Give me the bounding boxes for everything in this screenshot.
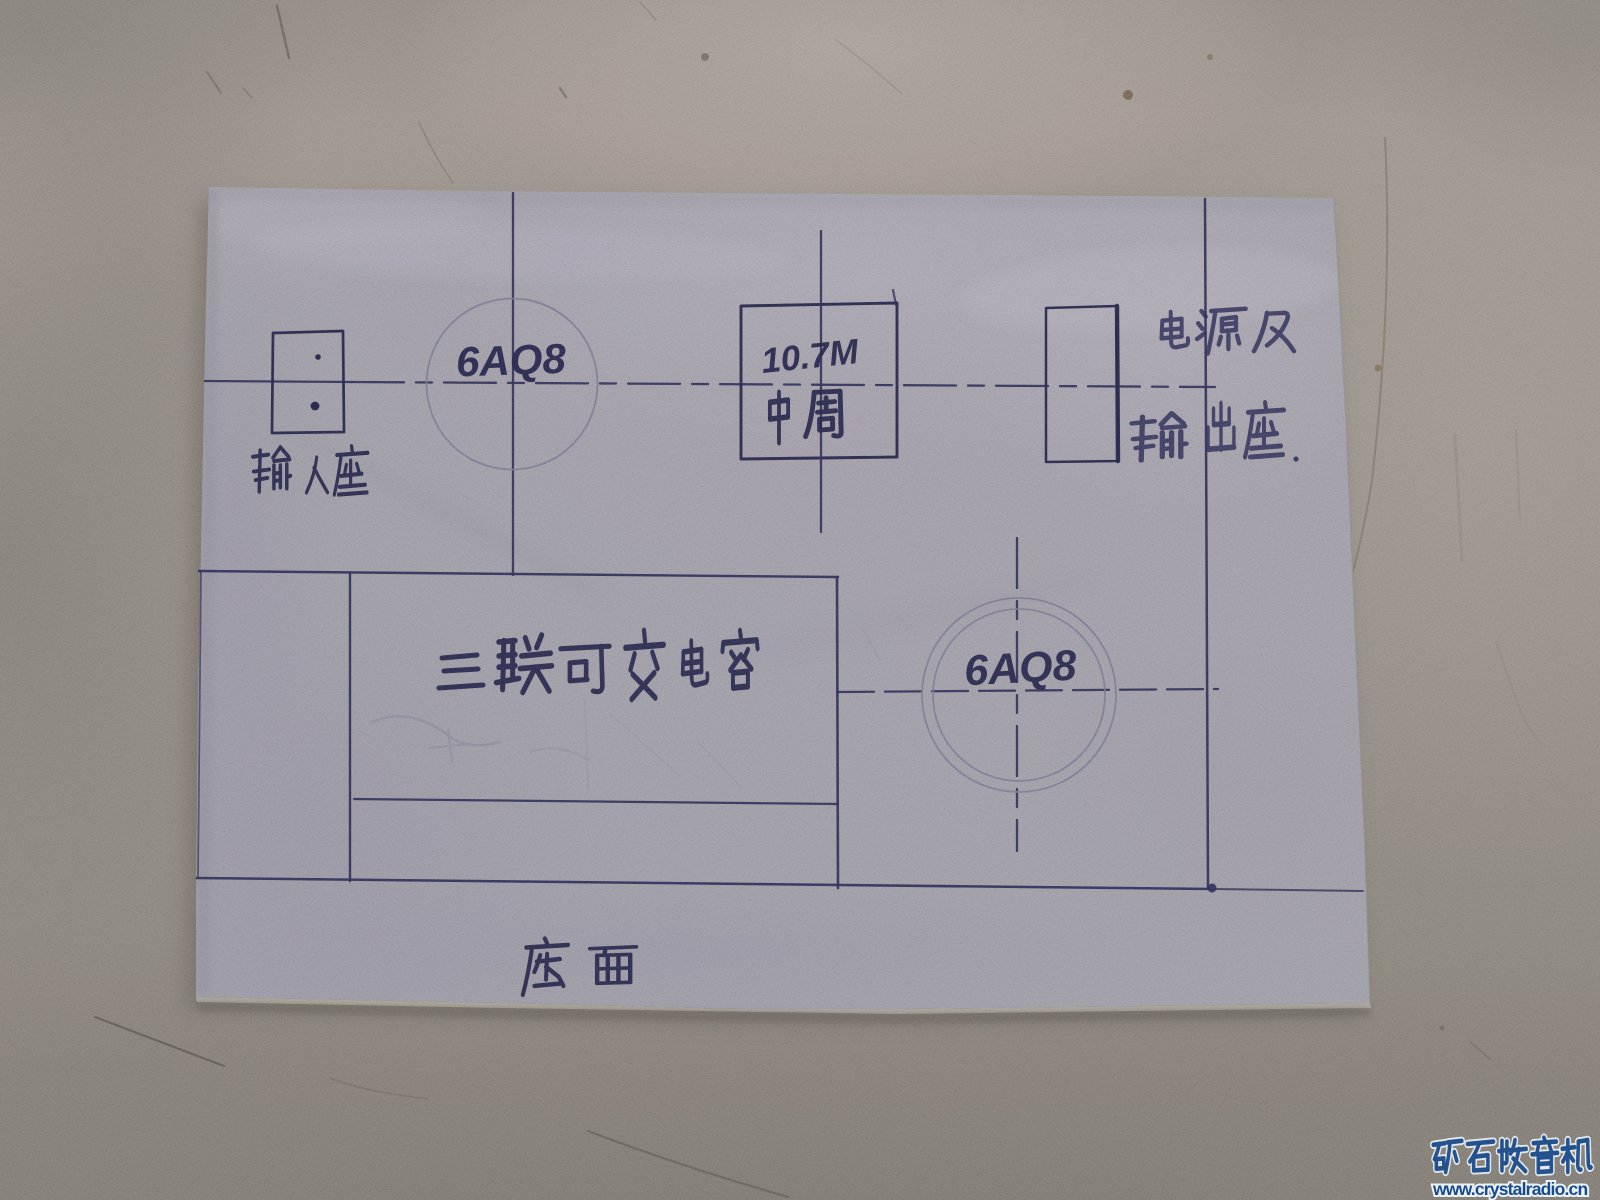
svg-text:www.crystalradio.cn: www.crystalradio.cn (1432, 1179, 1587, 1199)
